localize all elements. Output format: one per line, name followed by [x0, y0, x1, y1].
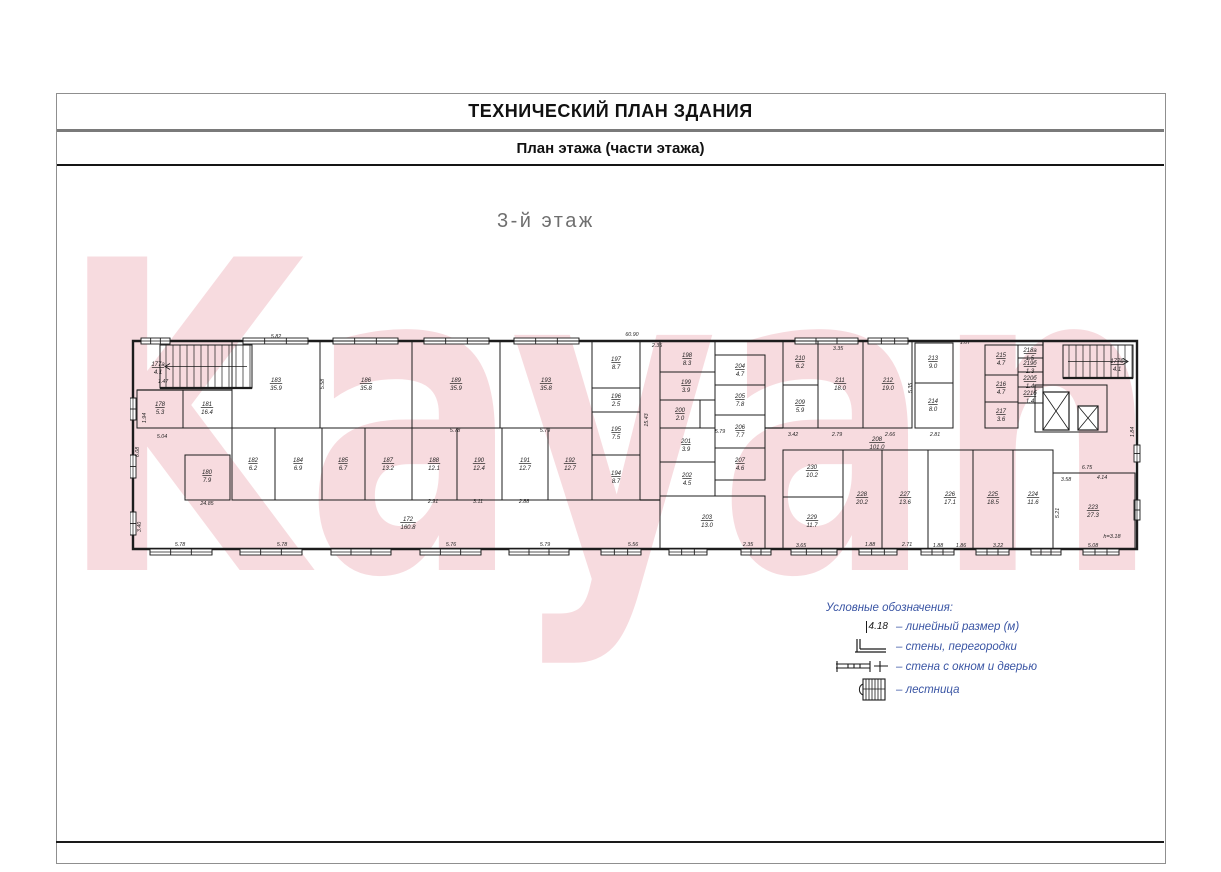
svg-text:206: 206	[734, 425, 746, 431]
room-211	[818, 341, 863, 428]
room-label-205: 2057.8	[734, 394, 746, 408]
room-label-190: 19012.4	[473, 458, 486, 472]
room-201	[660, 428, 715, 462]
svg-text:227: 227	[899, 492, 911, 498]
svg-text:7.7: 7.7	[736, 433, 745, 439]
svg-text:12.7: 12.7	[564, 466, 576, 472]
room-label-194: 1948.7	[611, 471, 622, 485]
svg-text:181: 181	[202, 402, 212, 408]
svg-text:217: 217	[995, 409, 1007, 415]
room-label-191: 19112.7	[519, 458, 532, 472]
room-209	[783, 385, 818, 428]
room-label-193: 19335.8	[540, 378, 553, 392]
svg-text:10.2: 10.2	[806, 473, 818, 479]
dimension-label: 6.08	[135, 447, 141, 457]
svg-text:4.5: 4.5	[683, 481, 692, 487]
room-217	[985, 402, 1018, 428]
svg-text:221б: 221б	[1022, 391, 1037, 397]
svg-text:3.9: 3.9	[682, 388, 691, 394]
walls-partitions-icon	[826, 638, 888, 655]
legend-item-label: – стена с окном и дверью	[896, 661, 1037, 673]
dimension-label: 3.65	[796, 543, 806, 549]
room-label-216: 2164.7	[995, 382, 1007, 396]
elevators	[1043, 392, 1098, 430]
room-label-223: 22327.3	[1086, 505, 1099, 519]
svg-text:226: 226	[944, 492, 956, 498]
svg-text:9.0: 9.0	[929, 364, 938, 370]
room-210	[783, 341, 818, 385]
room-207	[715, 448, 765, 480]
linear-dimension-sample: 4.18	[866, 621, 888, 633]
room-label-224: 22411.6	[1027, 492, 1039, 506]
room-label-197: 1978.7	[611, 357, 622, 371]
room-184	[275, 428, 322, 500]
dimension-label: 2.71	[901, 542, 912, 548]
stairs-icon	[826, 678, 888, 702]
svg-text:4.1: 4.1	[1113, 367, 1121, 373]
svg-text:200: 200	[674, 408, 686, 414]
windows	[130, 338, 1140, 555]
room-label-212: 21219.0	[882, 378, 895, 392]
svg-text:215: 215	[995, 353, 1007, 359]
elevator-shaft	[1078, 406, 1098, 430]
room-label-192: 19212.7	[564, 458, 577, 472]
sheet: { "page": { "title": "ТЕХНИЧЕСКИЙ ПЛАН З…	[0, 0, 1221, 867]
floor-label: 3-й этаж	[497, 210, 595, 233]
dimension-label: 5.78	[277, 542, 287, 548]
dimension-label: 2.79	[831, 432, 842, 438]
room-label-188: 18812.1	[428, 458, 440, 472]
svg-text:4.7: 4.7	[736, 372, 745, 378]
room-label-228: 22820.2	[855, 492, 868, 506]
svg-text:35.9: 35.9	[450, 386, 462, 392]
svg-text:27.3: 27.3	[1086, 513, 1099, 519]
room-label-201: 2013.9	[680, 439, 691, 453]
room-label-206: 2067.7	[734, 425, 746, 439]
svg-text:20.2: 20.2	[855, 500, 868, 506]
svg-text:191: 191	[520, 458, 530, 464]
room-204	[715, 355, 765, 385]
dimension-label: 5.82	[271, 334, 281, 340]
svg-text:7.9: 7.9	[203, 478, 212, 484]
svg-text:195: 195	[611, 427, 622, 433]
legend-item-window-door: – стена с окном и дверью	[826, 658, 1136, 675]
room-label-211: 21118.0	[834, 378, 847, 392]
svg-text:203: 203	[701, 515, 713, 521]
dimension-label: 5.78	[175, 542, 185, 548]
dimension-label: 5.08	[1088, 543, 1098, 549]
room-199	[660, 372, 715, 400]
svg-text:201: 201	[680, 439, 691, 445]
svg-text:4.7: 4.7	[997, 390, 1006, 396]
document-title: ТЕХНИЧЕСКИЙ ПЛАН ЗДАНИЯ	[57, 94, 1164, 132]
dimension-label: 3.58	[1061, 477, 1071, 483]
room-191	[502, 428, 548, 500]
dimension-label: 6.75	[1082, 465, 1092, 471]
svg-text:198: 198	[682, 353, 693, 359]
svg-text:8.3: 8.3	[683, 361, 692, 367]
dimension-label: 3.42	[788, 432, 798, 438]
room-label-230: 23010.2	[806, 465, 819, 479]
dimension-label: 5.58	[320, 379, 326, 389]
svg-text:6.2: 6.2	[796, 364, 805, 370]
dimension-label: 5.56	[628, 542, 638, 548]
legend-heading: Условные обозначения:	[826, 602, 1136, 614]
svg-text:178: 178	[155, 402, 166, 408]
dimension-label: 1.07	[960, 340, 971, 346]
svg-text:212: 212	[882, 378, 894, 384]
svg-text:189: 189	[451, 378, 462, 384]
room-186	[320, 341, 412, 428]
room-214	[915, 383, 953, 428]
svg-text:230: 230	[806, 465, 818, 471]
room-183	[232, 341, 320, 428]
svg-text:19.0: 19.0	[882, 386, 894, 392]
room-202	[660, 462, 715, 496]
dimension-label: 5.04	[157, 434, 167, 440]
room-200	[660, 400, 700, 428]
svg-text:183: 183	[271, 378, 282, 384]
legend: Условные обозначения: 4.18 – линейный ра…	[826, 602, 1136, 705]
dimension-label: 5.79	[540, 428, 550, 434]
building-outline	[133, 341, 1137, 549]
room-190	[457, 428, 502, 500]
svg-text:12.7: 12.7	[519, 466, 531, 472]
staircase	[160, 345, 252, 388]
document-subtitle: План этажа (части этажа)	[57, 132, 1164, 166]
svg-text:35.8: 35.8	[360, 386, 372, 392]
document-subtitle-text: План этажа (части этажа)	[516, 140, 704, 157]
dimension-label: 2.35	[742, 542, 753, 548]
dimension-label: 1.84	[1130, 427, 1136, 437]
svg-text:182: 182	[248, 458, 259, 464]
svg-text:2.0: 2.0	[675, 416, 685, 422]
dimension-label: 1.86	[956, 543, 966, 549]
dimension-label: 2.88	[518, 499, 529, 505]
svg-text:209: 209	[794, 400, 806, 406]
svg-text:8.7: 8.7	[612, 365, 621, 371]
dimension-label: 60.90	[625, 332, 638, 338]
room-label-187: 18713.2	[382, 458, 395, 472]
dimension-label: 5.76	[446, 542, 456, 548]
room-label-195: 1957.5	[611, 427, 622, 441]
legend-item-linear-dimension: 4.18 – линейный размер (м)	[826, 618, 1136, 635]
dimension-labels: 5.8260.902.353.351.075.785.785.765.795.5…	[135, 332, 1136, 549]
room-192	[548, 428, 592, 500]
room-label-214: 2148.0	[927, 399, 939, 413]
svg-text:199: 199	[681, 380, 692, 386]
room-label-203: 20313.0	[701, 515, 714, 529]
floor-plan: 177а4.11785.318116.418335.918635.818935.…	[130, 330, 1142, 558]
svg-text:218а: 218а	[1022, 348, 1037, 354]
dimension-label: 1.94	[142, 413, 148, 423]
legend-item-label: – стены, перегородки	[896, 641, 1017, 653]
svg-text:35.8: 35.8	[540, 386, 552, 392]
svg-text:13.2: 13.2	[382, 466, 394, 472]
room-215	[985, 345, 1018, 375]
svg-text:13.0: 13.0	[701, 523, 713, 529]
room-label-186: 18635.8	[360, 378, 373, 392]
svg-text:228: 228	[856, 492, 868, 498]
building-walls	[133, 341, 1137, 549]
room-label-202: 2024.5	[681, 473, 693, 487]
svg-text:13.6: 13.6	[899, 500, 911, 506]
dimension-label: 5.79	[540, 542, 550, 548]
svg-text:4.6: 4.6	[736, 466, 745, 472]
dimension-label: 3.40	[137, 522, 143, 532]
room-label-183: 18335.9	[270, 378, 283, 392]
svg-text:12.1: 12.1	[428, 466, 440, 472]
svg-text:180: 180	[202, 470, 213, 476]
svg-text:7.8: 7.8	[736, 402, 745, 408]
height-note: h=3.18	[1103, 534, 1121, 540]
svg-text:7.5: 7.5	[612, 435, 621, 441]
room-label-209: 2095.9	[794, 400, 806, 414]
room-216	[985, 375, 1018, 402]
svg-text:211: 211	[834, 378, 845, 384]
svg-text:4.1: 4.1	[154, 370, 162, 376]
room-label-207: 2074.6	[734, 458, 746, 472]
staircase	[1063, 345, 1133, 378]
dimension-label: 24.85	[199, 501, 213, 507]
room-label-204: 2044.7	[734, 364, 746, 378]
room-label-172: 172160.8	[400, 517, 416, 531]
svg-text:216: 216	[995, 382, 1007, 388]
stairs	[160, 345, 1133, 388]
svg-text:193: 193	[541, 378, 552, 384]
room-188	[412, 428, 457, 500]
dimension-label: 5.35	[908, 383, 914, 393]
svg-text:6.9: 6.9	[294, 466, 303, 472]
dimension-label: 5.78	[450, 428, 460, 434]
room-187	[365, 428, 412, 500]
room-label-178: 1785.3	[155, 402, 166, 416]
room-193	[500, 341, 592, 428]
svg-text:18.5: 18.5	[987, 500, 999, 506]
rooms: 177а4.11785.318116.418335.918635.818935.…	[137, 341, 1135, 549]
dimension-label: 4.14	[1097, 475, 1107, 481]
legend-item-label: – линейный размер (м)	[896, 621, 1019, 633]
room-212	[863, 341, 912, 428]
linear-dimension-icon: 4.18	[826, 621, 888, 633]
svg-text:12.4: 12.4	[473, 466, 485, 472]
room-213	[915, 343, 953, 383]
svg-text:17.1: 17.1	[944, 500, 956, 506]
room-label-219б: 219б1.3	[1022, 361, 1037, 375]
room-label-210: 2106.2	[794, 356, 806, 370]
svg-text:8.0: 8.0	[929, 407, 938, 413]
svg-text:187: 187	[383, 458, 394, 464]
svg-text:8.7: 8.7	[612, 479, 621, 485]
svg-text:229: 229	[806, 515, 818, 521]
svg-text:208: 208	[871, 437, 883, 443]
bottom-rule	[56, 841, 1164, 843]
legend-item-walls: – стены, перегородки	[826, 638, 1136, 655]
room-label-180: 1807.9	[202, 470, 213, 484]
room-189	[412, 341, 500, 428]
svg-text:188: 188	[429, 458, 440, 464]
room-label-217: 2173.6	[995, 409, 1007, 423]
document-title-text: ТЕХНИЧЕСКИЙ ПЛАН ЗДАНИЯ	[468, 101, 753, 122]
room-label-218а: 218а1.5	[1022, 348, 1037, 362]
svg-text:35.9: 35.9	[270, 386, 282, 392]
elevator-shaft	[1043, 392, 1069, 430]
svg-text:225: 225	[987, 492, 999, 498]
dimension-label: 3.22	[993, 543, 1003, 549]
dimension-label: 2.81	[929, 432, 940, 438]
room-194	[592, 455, 640, 500]
room-label-184: 1846.9	[293, 458, 304, 472]
svg-text:5.9: 5.9	[796, 408, 805, 414]
room-223	[1053, 473, 1135, 549]
dimension-label: 5.21	[1055, 508, 1061, 518]
legend-item-stairs: – лестница	[826, 678, 1136, 702]
wall-window-door-icon	[826, 660, 888, 673]
room-182	[232, 428, 275, 500]
svg-text:3.6: 3.6	[997, 417, 1006, 423]
dimension-label: 1.47	[158, 379, 169, 385]
room-label-199: 1993.9	[681, 380, 692, 394]
svg-text:160.8: 160.8	[400, 525, 416, 531]
svg-text:220б: 220б	[1022, 376, 1037, 382]
room-label-181: 18116.4	[201, 402, 214, 416]
svg-text:204: 204	[734, 364, 746, 370]
room-label-189: 18935.9	[450, 378, 463, 392]
svg-text:224: 224	[1027, 492, 1039, 498]
room-label-182: 1826.2	[248, 458, 259, 472]
svg-text:177а: 177а	[151, 362, 165, 368]
room-label-208: 208101.0	[869, 437, 885, 451]
svg-text:185: 185	[338, 458, 349, 464]
dimension-label: 1.88	[865, 542, 875, 548]
svg-text:5.3: 5.3	[156, 410, 165, 416]
svg-text:207: 207	[734, 458, 746, 464]
room-185	[322, 428, 365, 500]
svg-text:192: 192	[565, 458, 576, 464]
room-205	[715, 385, 765, 415]
room-label-229: 22911.7	[806, 515, 818, 529]
svg-text:11.7: 11.7	[806, 523, 818, 529]
dimension-label: 15.43	[644, 413, 650, 426]
svg-text:11.6: 11.6	[1027, 500, 1039, 506]
room-label-200: 2002.0	[674, 408, 686, 422]
svg-text:210: 210	[794, 356, 806, 362]
room-label-185: 1856.7	[338, 458, 349, 472]
svg-text:190: 190	[474, 458, 485, 464]
room-195	[592, 412, 640, 455]
room-196	[592, 388, 640, 412]
svg-text:6.2: 6.2	[249, 466, 258, 472]
svg-text:196: 196	[611, 394, 622, 400]
room-label-227: 22713.6	[899, 492, 912, 506]
svg-text:177б: 177б	[1110, 359, 1124, 365]
svg-text:213: 213	[927, 356, 939, 362]
svg-text:214: 214	[927, 399, 939, 405]
dimension-label: 2.35	[651, 343, 662, 349]
dimension-label: 1.88	[933, 543, 943, 549]
room-label-226: 22617.1	[944, 492, 956, 506]
room-label-215: 2154.7	[995, 353, 1007, 367]
svg-text:1.4: 1.4	[1026, 399, 1035, 405]
room-label-198: 1988.3	[682, 353, 693, 367]
dimension-label: 2.91	[427, 499, 438, 505]
dimension-label: 3.11	[473, 499, 483, 505]
svg-text:3.9: 3.9	[682, 447, 691, 453]
room-label-196: 1962.5	[611, 394, 622, 408]
svg-text:197: 197	[611, 357, 622, 363]
dimension-label: 5.79	[715, 429, 725, 435]
svg-text:16.4: 16.4	[201, 410, 213, 416]
svg-text:186: 186	[361, 378, 372, 384]
svg-text:194: 194	[611, 471, 622, 477]
svg-text:202: 202	[681, 473, 693, 479]
room-label-177а: 177а4.1	[151, 362, 165, 376]
svg-text:205: 205	[734, 394, 746, 400]
svg-text:4.7: 4.7	[997, 361, 1006, 367]
dimension-label: 2.66	[884, 432, 895, 438]
svg-text:223: 223	[1087, 505, 1099, 511]
svg-text:219б: 219б	[1022, 361, 1037, 367]
legend-item-label: – лестница	[896, 684, 960, 696]
dimension-label: 3.35	[833, 346, 843, 352]
room-label-213: 2139.0	[927, 356, 939, 370]
svg-text:6.7: 6.7	[339, 466, 348, 472]
room-181	[183, 390, 232, 428]
svg-text:184: 184	[293, 458, 304, 464]
svg-text:172: 172	[403, 517, 414, 523]
svg-text:2.5: 2.5	[611, 402, 621, 408]
room-label-225: 22518.5	[987, 492, 1000, 506]
svg-text:18.0: 18.0	[834, 386, 846, 392]
